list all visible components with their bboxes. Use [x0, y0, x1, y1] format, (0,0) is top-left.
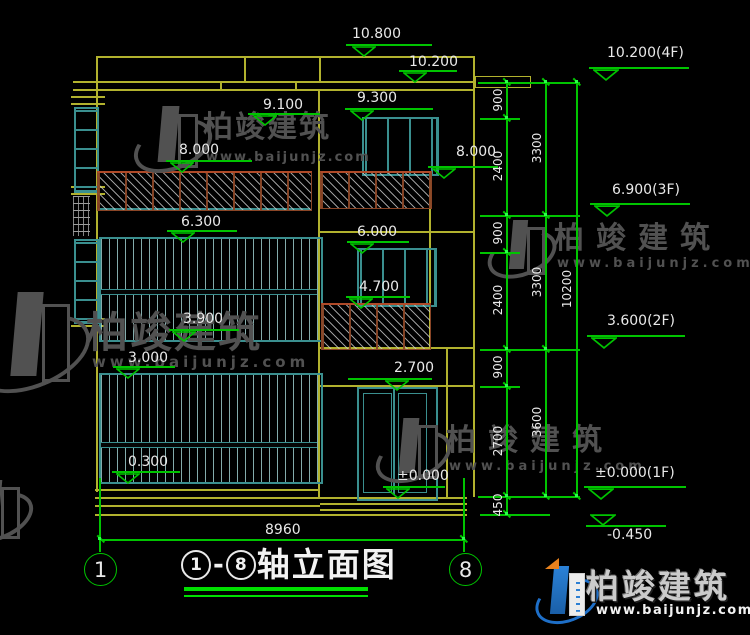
dim-chain-line-1 [506, 82, 508, 515]
dim-label: 450 [491, 494, 505, 517]
roof-slab-bottom-line [73, 89, 475, 91]
level-triangle-icon [593, 69, 619, 81]
dim-extension-line [480, 349, 580, 351]
dim-label: 900 [491, 89, 505, 112]
watermark-url-text: www.baijunjz.com [557, 257, 750, 270]
level-triangle-icon [349, 298, 373, 309]
dim-dot [505, 116, 508, 119]
level-triangle-icon [172, 331, 196, 342]
floor-level-text-2f: 3.600(2F) [607, 314, 675, 329]
dim-label: 10200 [560, 270, 574, 308]
axis-bubble-1: 1 [84, 553, 117, 586]
logo-building-icon [569, 573, 585, 616]
dim-extension-line [478, 82, 580, 84]
dim-dot [505, 80, 508, 83]
level-text-0300: 0.300 [128, 455, 168, 470]
bay-window-upper [74, 107, 99, 193]
level-text-6300: 6.300 [181, 215, 221, 230]
ground-line [95, 514, 467, 516]
balcony-railing-2f-right [321, 303, 431, 350]
logo-brand-text: 柏竣建筑 [586, 570, 730, 603]
dim-dot [462, 537, 465, 540]
dim-extension-line [480, 118, 520, 120]
roof-slab-joint [295, 82, 297, 90]
level-triangle-icon [352, 46, 376, 57]
level-triangle-icon [170, 162, 194, 173]
grid-line-1 [99, 478, 101, 552]
axis-bubble-8: 8 [449, 553, 482, 586]
dim-dot [575, 80, 578, 83]
roof-slab-joint [220, 82, 222, 90]
level-text-8000-left: 8.000 [179, 143, 219, 158]
dim-label: 900 [491, 222, 505, 245]
level-text-9100: 9.100 [263, 98, 303, 113]
title-underline-thick [184, 587, 368, 591]
entry-step-line [320, 509, 467, 511]
title-text: 轴立面图 [257, 548, 397, 581]
parapet-division-line [319, 58, 321, 82]
plinth-line [95, 497, 320, 499]
dim-dot [505, 250, 508, 253]
dim-extension-line [480, 215, 580, 217]
logo-roof-icon [545, 558, 559, 569]
plinth-line [95, 505, 320, 507]
level-triangle-icon [591, 337, 617, 349]
dim-dot [544, 347, 547, 350]
title-axis-circle-8: 8 [226, 550, 256, 580]
level-triangle-icon [403, 72, 427, 83]
dim-extension-line [480, 252, 520, 254]
floor-level-text-1f: ±0.000(1F) [595, 466, 675, 481]
logo-url-text: www.baijunjz.com [596, 603, 750, 618]
dim-dot [505, 494, 508, 497]
level-triangle-icon [350, 243, 374, 254]
dim-extension-line [480, 386, 520, 388]
level-triangle-icon [432, 168, 456, 179]
dim-dot [98, 537, 101, 540]
level-text-9300: 9.300 [357, 91, 397, 106]
dim-label: 2700 [491, 426, 505, 457]
dim-label: 3300 [530, 133, 544, 164]
slatted-window-2f-transom [101, 289, 317, 295]
level-triangle-icon [588, 488, 614, 500]
dim-dot [544, 213, 547, 216]
dim-label: 3600 [530, 407, 544, 438]
elevation-drawing-canvas: 柏竣建筑 www.baijunjz.com 柏竣建筑 www.baijunjz.… [0, 0, 750, 635]
slatted-window-1f-transom [101, 442, 317, 448]
level-text-3000: 3.000 [128, 351, 168, 366]
level-triangle-icon [386, 488, 410, 499]
level-text-3900: 3.900 [183, 312, 223, 327]
level-triangle-icon [385, 380, 409, 391]
dim-dot [505, 213, 508, 216]
watermark-brand-text: 柏竣建筑 [554, 224, 722, 254]
level-triangle-icon [594, 205, 620, 217]
watermark-building-icon [0, 480, 24, 540]
level-text-6000: 6.000 [357, 225, 397, 240]
level-triangle-icon [116, 368, 140, 379]
plinth-line [95, 489, 320, 491]
level-text-8000-right: 8.000 [456, 145, 496, 160]
dim-dot [505, 347, 508, 350]
level-triangle-icon [116, 473, 140, 484]
level-triangle-icon [590, 514, 616, 526]
balcony-railing-3f-right [320, 171, 432, 209]
dim-label: 2400 [491, 285, 505, 316]
level-triangle-icon [253, 115, 277, 126]
dim-label: 3300 [530, 267, 544, 298]
level-text-10200: 10.200 [409, 55, 458, 70]
watermark-url-text: www.baijunjz.com [206, 151, 371, 164]
dim-chain-line-3 [576, 82, 578, 497]
bay-sill-line [71, 103, 105, 105]
title-underline-thin [184, 595, 368, 597]
overall-width-dim-text: 8960 [265, 523, 301, 538]
drawing-title: 1 - 8 轴立面图 [181, 548, 397, 581]
level-text-4700: 4.700 [359, 280, 399, 295]
level-triangle-icon [350, 110, 374, 121]
parapet-division-line [244, 58, 246, 82]
bay-sill-line [71, 96, 105, 98]
floor-level-text-base: -0.450 [607, 528, 652, 543]
level-text-10800: 10.800 [352, 27, 401, 42]
floor-level-text-4f: 10.200(4F) [607, 46, 684, 61]
entry-step-line [320, 503, 467, 505]
watermark-building-icon [0, 292, 80, 388]
balcony-railing-3f-left [97, 171, 312, 211]
dim-dot [544, 80, 547, 83]
level-triangle-icon [171, 232, 195, 243]
dim-dot [505, 384, 508, 387]
dim-dot [575, 494, 578, 497]
dim-chain-line-2 [545, 82, 547, 497]
stair-detail [73, 196, 90, 236]
floor-level-text-3f: 6.900(3F) [612, 183, 680, 198]
dim-label: 900 [491, 356, 505, 379]
level-text-2700: 2.700 [394, 361, 434, 376]
title-axis-circle-1: 1 [181, 550, 211, 580]
dim-dot [544, 494, 547, 497]
overall-width-dim-line [100, 539, 465, 541]
title-dash: - [213, 550, 224, 580]
dim-dot [505, 512, 508, 515]
level-text-0000: ±0.000 [397, 469, 449, 484]
